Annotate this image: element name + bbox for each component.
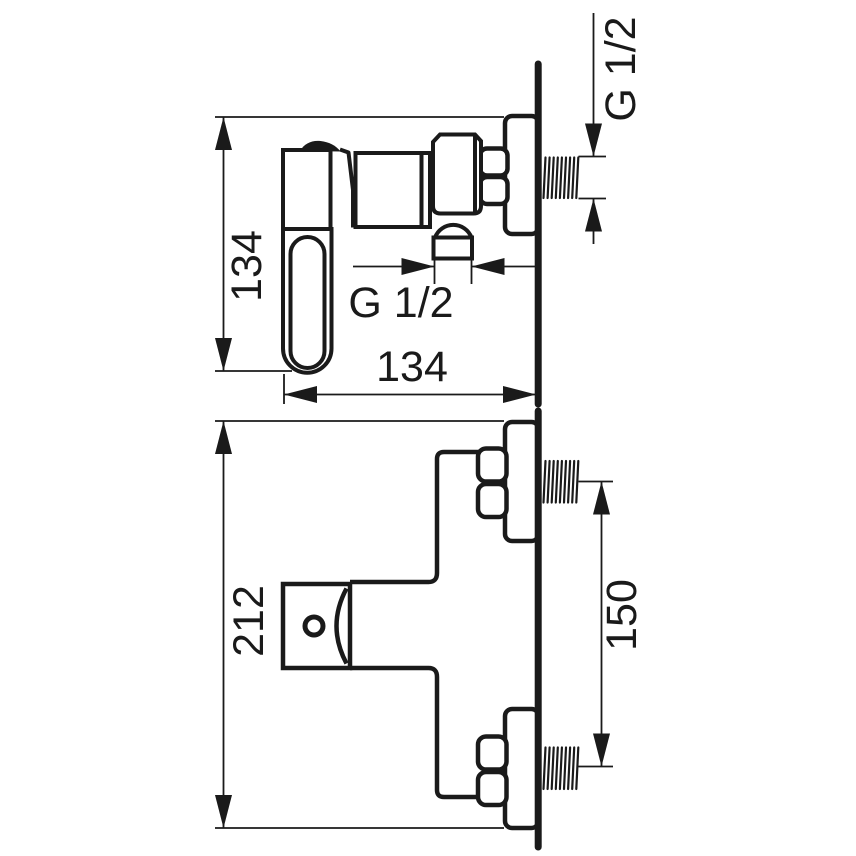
side-outlet [434,225,473,259]
side-cone-transition [340,150,353,228]
technical-drawing-page: 134 134 G 1/2 G 1/2 [0,0,856,856]
side-wall-thread-label: G 1/2 [597,16,645,121]
side-thread [544,158,579,199]
arrow-down-icon [215,795,232,828]
side-width-label: 134 [376,343,448,391]
side-grip-cutout [291,237,325,368]
side-hex-nut [480,149,508,205]
arrow-down-icon [215,338,232,371]
side-valve-body [433,135,481,214]
top-hex-nut-lower [478,737,507,806]
top-depth-label: 212 [225,585,273,657]
top-handle [283,584,350,668]
top-dim-spacing-150: 150 [579,482,647,767]
top-dim-depth-212: 212 [215,421,504,828]
top-hex-nut-upper [478,449,507,518]
side-outlet-nut [434,238,473,259]
arrow-up-icon [215,421,232,454]
side-lever-cap [300,141,341,152]
top-thread-lower [544,748,579,790]
top-escutcheon-upper [505,422,539,541]
top-view: 212 150 [215,411,646,847]
side-outlet-thread-label: G 1/2 [348,279,453,327]
top-body-arm [350,573,437,677]
arrow-right-icon [402,258,435,275]
arrow-up-icon [593,482,610,515]
side-view: 134 134 G 1/2 G 1/2 [215,13,645,404]
arrow-down-icon [593,734,610,767]
side-dim-wall-thread: G 1/2 [579,13,646,244]
side-cartridge-barrel [356,153,431,227]
top-handle-pin [305,617,323,635]
arrow-up-icon [215,117,232,150]
arrow-left-icon [284,386,317,403]
arrow-down-icon [585,124,602,157]
arrow-left-icon [472,258,505,275]
shower-mixer-technical-drawing: 134 134 G 1/2 G 1/2 [0,0,856,856]
top-spacing-label: 150 [598,579,646,651]
side-height-label: 134 [223,230,271,302]
side-dim-outlet-thread: G 1/2 [348,258,536,327]
top-thread-upper [544,461,579,503]
arrow-up-icon [585,199,602,232]
arrow-right-icon [503,386,536,403]
side-escutcheon-plate [505,116,539,234]
top-escutcheon-lower [505,709,539,828]
side-handle [283,141,341,373]
